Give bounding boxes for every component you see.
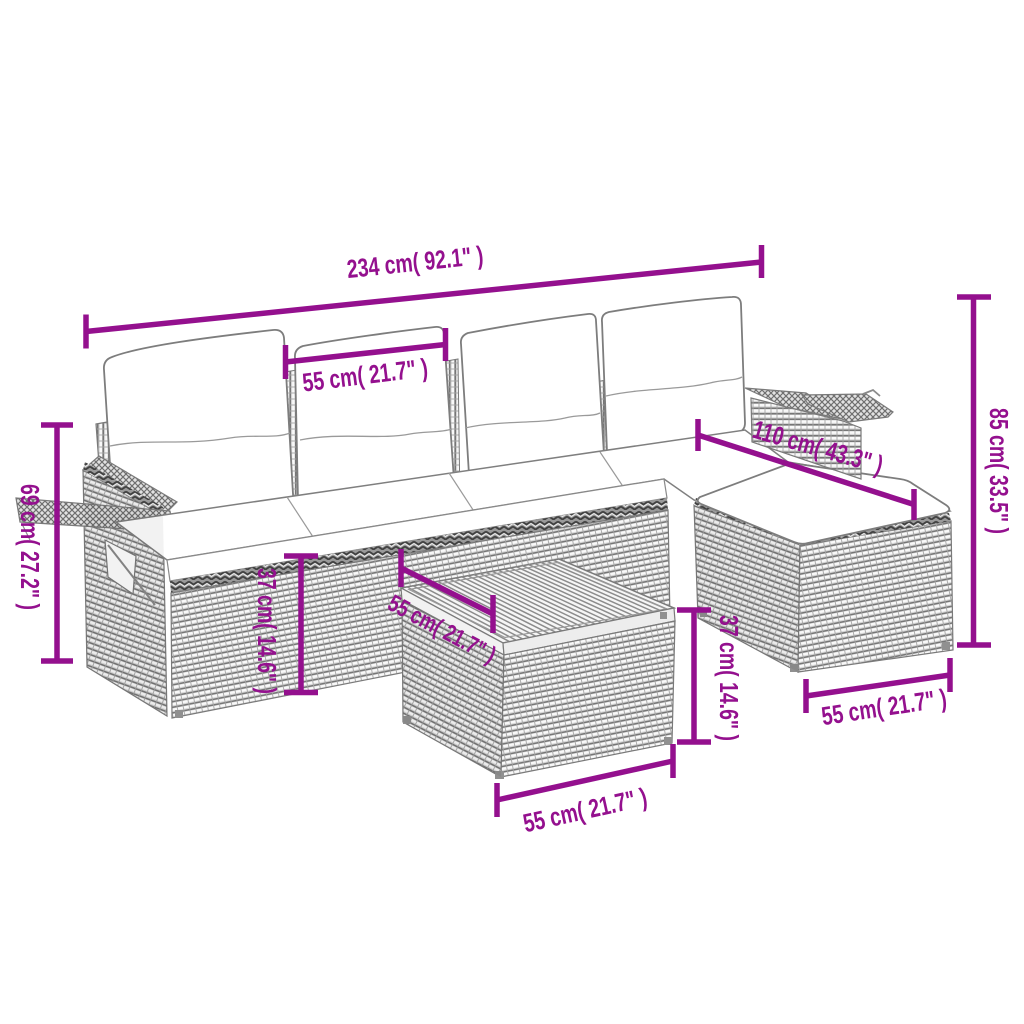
svg-text:37 cm( 14.6" ): 37 cm( 14.6" ) (714, 615, 744, 741)
svg-text:85 cm( 33.5" ): 85 cm( 33.5" ) (984, 408, 1014, 534)
svg-text:69 cm( 27.2" ): 69 cm( 27.2" ) (15, 484, 45, 610)
svg-text:37 cm( 14.6" ): 37 cm( 14.6" ) (252, 568, 282, 694)
